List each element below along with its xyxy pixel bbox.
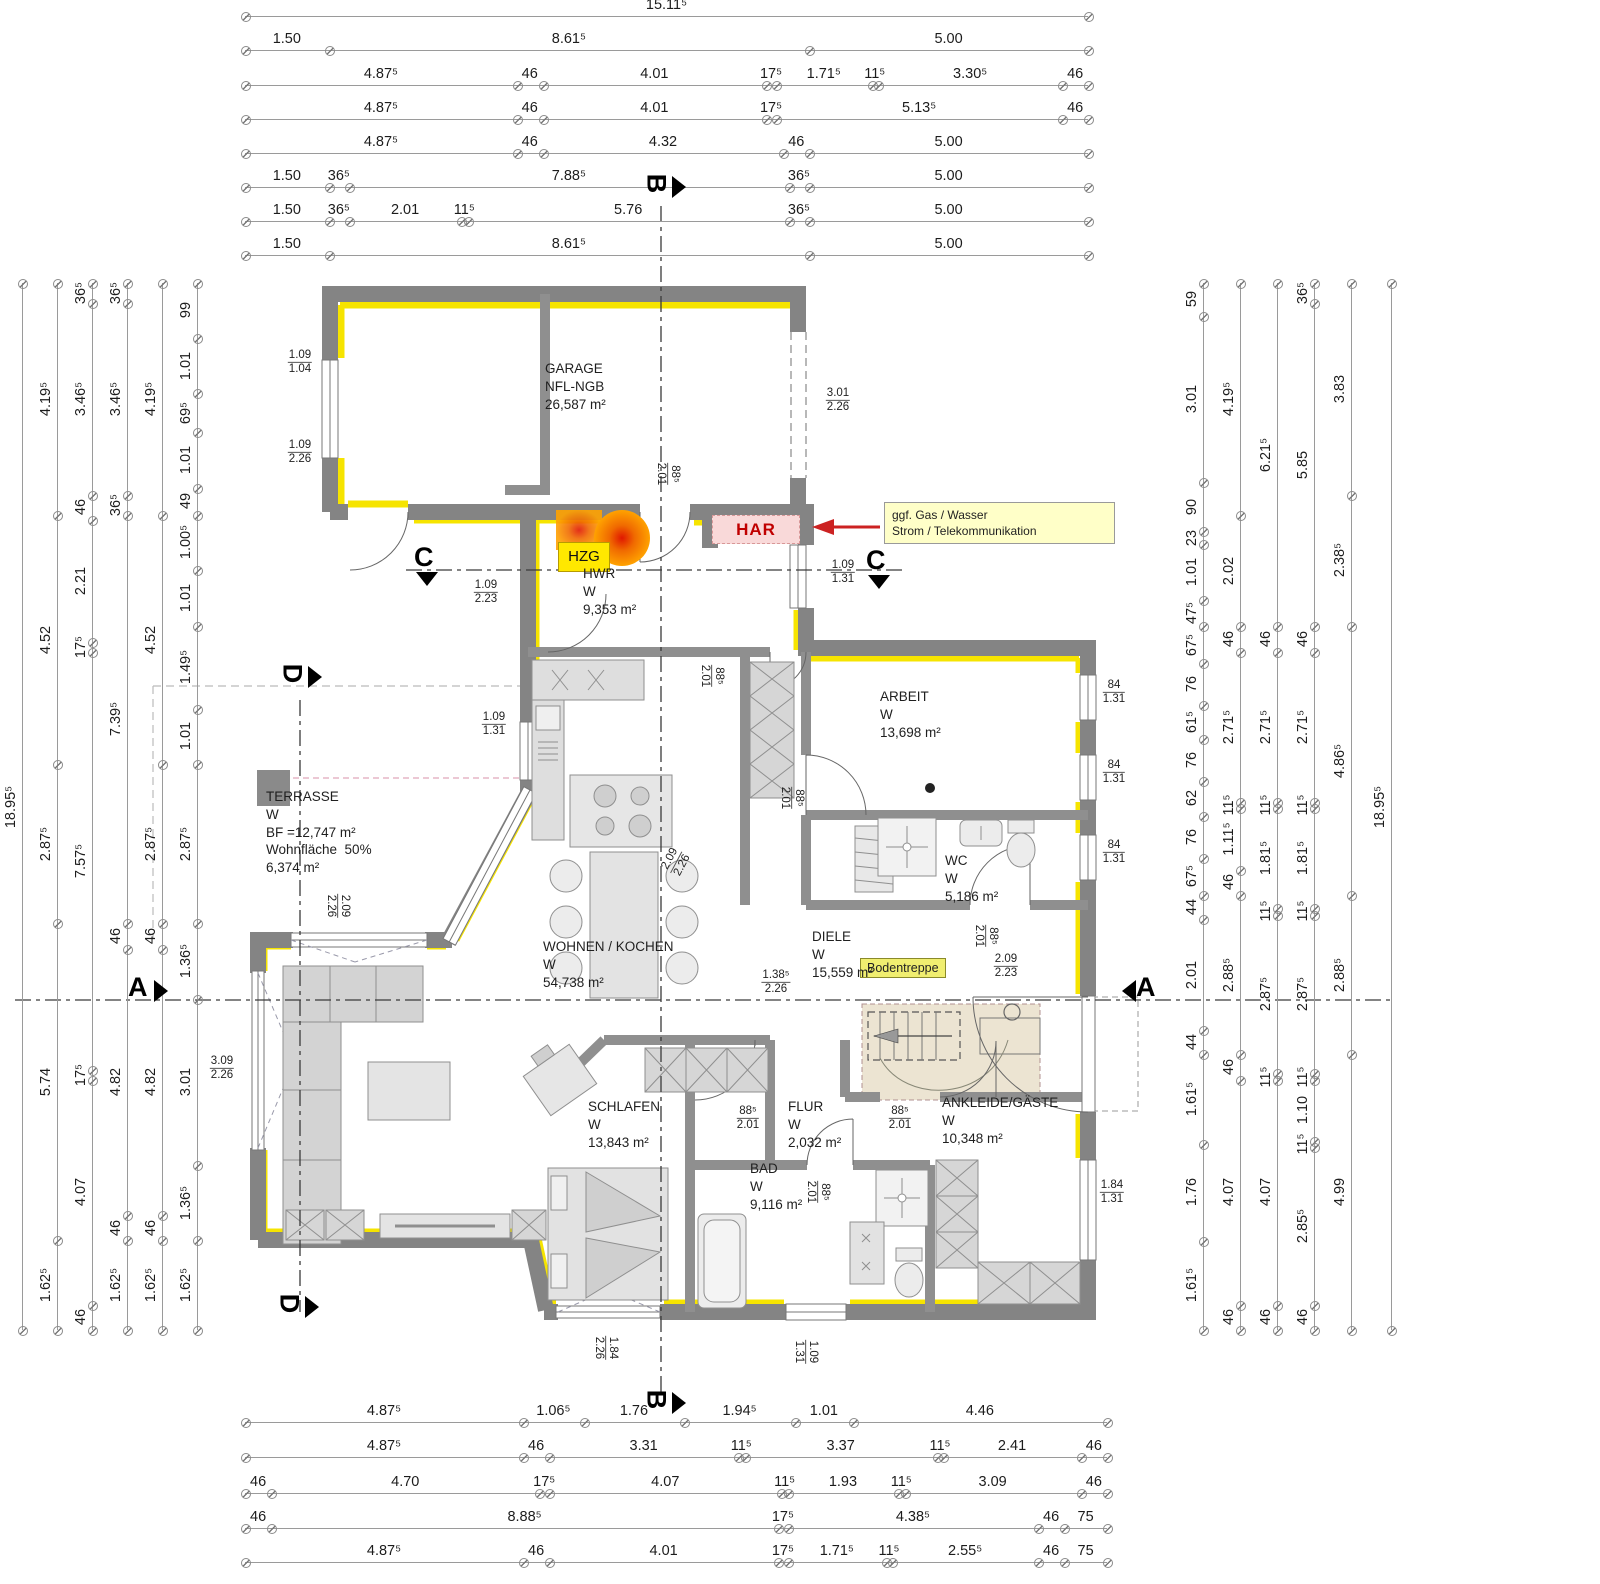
section-marker-c: C: [414, 542, 434, 573]
dim-value: 2.71⁵: [1258, 710, 1274, 744]
dim-value: 90: [1184, 499, 1200, 515]
dim-tick: [1103, 1418, 1113, 1428]
dim-tick: [1236, 891, 1246, 901]
dim-value: 4.46: [966, 1403, 994, 1419]
dim-tick: [241, 1489, 251, 1499]
dim-value: 1.81⁵: [1258, 841, 1274, 875]
opening-size: 1.842.26: [593, 1336, 619, 1360]
opening-height: 2.01: [805, 1181, 818, 1203]
attic-stair-zone: [862, 1004, 1040, 1100]
dim-value: 46: [1258, 1309, 1274, 1325]
dim-tick: [88, 1076, 98, 1086]
dim-tick: [1347, 891, 1357, 901]
dim-value: 2.02: [1221, 556, 1237, 584]
dim-value: 7.39⁵: [108, 702, 124, 736]
dim-value: 11⁵: [864, 66, 885, 82]
room-label-flur: FLUR W 2,032 m²: [788, 1098, 841, 1151]
room-label-terrasse: TERRASSE W BF =12,747 m² Wohnfläche 50% …: [266, 788, 372, 877]
dim-value: 5.00: [934, 202, 962, 218]
dim-tick: [1034, 1524, 1044, 1534]
dim-value: 46: [108, 1219, 124, 1235]
opening-size: 3.012.26: [826, 387, 850, 413]
dim-value: 46: [250, 1509, 266, 1525]
opening-size: 1.091.31: [831, 559, 855, 585]
dim-value: 7.88⁵: [552, 168, 586, 184]
dim-value: 1.62⁵: [178, 1268, 194, 1302]
dim-tick: [1077, 1489, 1087, 1499]
dim-value: 1.62⁵: [108, 1268, 124, 1302]
dim-tick: [1310, 1326, 1320, 1336]
dim-value: 2.71⁵: [1221, 710, 1237, 744]
dim-value: 4.87⁵: [367, 1543, 401, 1559]
garage-opening: [791, 332, 806, 478]
dim-value: 4.87⁵: [364, 100, 398, 116]
utility-note-line1: ggf. Gas / Wasser: [892, 508, 988, 522]
section-arrow-icon: [308, 666, 322, 688]
dim-value: 2.41: [998, 1438, 1026, 1454]
section-letter: C: [866, 545, 886, 576]
dim-tick: [158, 279, 168, 289]
dim-value: 5.00: [934, 168, 962, 184]
dim-chain: [245, 1493, 1107, 1494]
dim-value: 46: [528, 1438, 544, 1454]
dim-tick: [1236, 1301, 1246, 1311]
dim-chain: [92, 283, 93, 1330]
dim-tick: [325, 217, 335, 227]
dim-tick: [772, 115, 782, 125]
dim-value: 1.01: [178, 584, 194, 612]
dim-tick: [1236, 1326, 1246, 1336]
dim-tick: [1084, 183, 1094, 193]
dim-chain: [162, 283, 163, 1330]
dim-value: 1.01: [810, 1403, 838, 1419]
dim-value: 59: [1184, 291, 1200, 307]
dim-tick: [785, 217, 795, 227]
opening-width: 3.09: [210, 1055, 234, 1069]
dim-tick: [785, 183, 795, 193]
opening-width: 88⁵: [889, 1105, 911, 1119]
dim-tick: [158, 1211, 168, 1221]
dim-tick: [158, 1326, 168, 1336]
dim-value: 4.19⁵: [143, 382, 159, 416]
dim-value: 15.11⁵: [646, 0, 687, 13]
dim-value: 2.01: [391, 202, 419, 218]
dim-value: 4.07: [651, 1474, 679, 1490]
dim-value: 11⁵: [454, 202, 475, 218]
dim-tick: [123, 491, 133, 501]
dim-value: 3.37: [827, 1438, 855, 1454]
dim-value: 11⁵: [1295, 901, 1311, 922]
dim-value: 2.87⁵: [1258, 977, 1274, 1011]
dim-value: 46: [73, 1309, 89, 1325]
dim-value: 11⁵: [1258, 901, 1274, 922]
dim-value: 4.01: [640, 66, 668, 82]
opening-height: 2.01: [737, 1119, 759, 1132]
opening-height: 1.31: [482, 725, 506, 738]
dim-tick: [741, 1453, 751, 1463]
dim-tick: [241, 1453, 251, 1463]
opening-size: 88⁵2.01: [779, 787, 805, 809]
dim-value: 2.85⁵: [1295, 1209, 1311, 1243]
dim-tick: [1273, 279, 1283, 289]
section-arrow-icon: [1122, 980, 1136, 1002]
dim-value: 1.01: [178, 722, 194, 750]
dim-tick: [88, 491, 98, 501]
opening-height: 1.31: [1103, 693, 1125, 706]
dim-value: 46: [522, 100, 538, 116]
har-label: HAR: [712, 515, 800, 544]
opening-height: 2.26: [325, 894, 338, 918]
dim-tick: [241, 217, 251, 227]
opening-height: 1.31: [1103, 853, 1125, 866]
dim-value: 1.50: [273, 31, 301, 47]
opening-width: 1.09: [806, 1340, 820, 1364]
dim-value: 1.94⁵: [722, 1403, 756, 1419]
section-letter: B: [640, 174, 671, 194]
dim-chain: [245, 1457, 1107, 1458]
dim-value: 36⁵: [1295, 282, 1311, 304]
opening-size: 841.31: [1103, 759, 1125, 785]
dim-tick: [53, 1326, 63, 1336]
dim-value: 46: [1258, 631, 1274, 647]
dim-tick: [193, 622, 203, 632]
section-arrow-icon: [672, 176, 686, 198]
dim-value: 4.07: [1258, 1178, 1274, 1206]
dim-value: 5.74: [38, 1068, 54, 1096]
dim-tick: [1199, 812, 1209, 822]
dim-tick: [774, 1524, 784, 1534]
dim-value: 3.46⁵: [73, 382, 89, 416]
dim-tick: [1310, 911, 1320, 921]
dim-value: 4.87⁵: [364, 134, 398, 150]
section-arrow-icon: [868, 575, 890, 589]
dim-tick: [849, 1418, 859, 1428]
dim-value: 44: [1184, 899, 1200, 915]
dim-value: 17⁵: [772, 1509, 794, 1525]
dim-value: 18.95⁵: [3, 785, 19, 827]
section-letter: A: [128, 972, 148, 1003]
dim-tick: [193, 995, 203, 1005]
section-arrow-icon: [416, 572, 438, 586]
opening-height: 1.31: [1100, 1193, 1124, 1206]
opening-size: 1.841.31: [1100, 1179, 1124, 1205]
dim-value: 46: [1221, 1309, 1237, 1325]
opening-height: 1.31: [793, 1340, 806, 1364]
dim-value: 2.88⁵: [1332, 958, 1348, 992]
dim-value: 8.61⁵: [552, 31, 586, 47]
dim-tick: [1199, 1237, 1209, 1247]
section-marker-d: D: [279, 1288, 299, 1319]
section-marker-b: B: [646, 168, 666, 199]
dim-tick: [325, 251, 335, 261]
dim-value: 46: [1295, 631, 1311, 647]
dim-chain: [57, 283, 58, 1330]
opening-size: 2.092.26: [325, 894, 351, 918]
dim-chain: [245, 153, 1088, 154]
dim-value: 69⁵: [178, 402, 194, 424]
dim-value: 4.19⁵: [38, 382, 54, 416]
opening-width: 1.09: [288, 439, 312, 453]
dim-chain: [127, 283, 128, 1330]
dim-value: 47⁵: [1184, 602, 1200, 624]
dim-chain: [1391, 283, 1392, 1330]
utility-arrow: [812, 519, 880, 535]
dim-chain: [197, 283, 198, 1330]
section-letter: D: [276, 664, 307, 684]
dim-tick: [1347, 279, 1357, 289]
opening-size: 841.31: [1103, 839, 1125, 865]
room-label-schlafen: SCHLAFEN W 13,843 m²: [588, 1098, 660, 1151]
dim-value: 75: [1078, 1543, 1094, 1559]
opening-size: 841.31: [1103, 679, 1125, 705]
dim-value: 1.61⁵: [1184, 1268, 1200, 1302]
dim-value: 7.57⁵: [73, 844, 89, 878]
section-marker-a: A: [128, 972, 148, 1003]
dim-tick: [123, 945, 133, 955]
dim-tick: [193, 511, 203, 521]
dim-tick: [1199, 891, 1209, 901]
dim-tick: [123, 511, 133, 521]
dim-value: 2.87⁵: [143, 827, 159, 861]
dim-value: 2.87⁵: [178, 827, 194, 861]
dim-tick: [1387, 279, 1397, 289]
dim-value: 36⁵: [328, 202, 350, 218]
dim-value: 1.71⁵: [807, 66, 841, 82]
dim-tick: [18, 279, 28, 289]
dim-value: 46: [143, 1219, 159, 1235]
dim-value: 4.86⁵: [1332, 744, 1348, 778]
opening-height: 2.26: [210, 1069, 234, 1082]
opening-width: 84: [1103, 679, 1125, 693]
dim-value: 46: [788, 134, 804, 150]
dim-value: 2.21: [73, 567, 89, 595]
opening-size: 88⁵2.01: [973, 925, 999, 947]
dim-value: 5.00: [934, 31, 962, 47]
opening-height: 2.26: [288, 453, 312, 466]
dim-chain: [245, 255, 1088, 256]
room-label-hwr: HWR W 9,353 m²: [583, 565, 636, 618]
dim-value: 1.61⁵: [1184, 1082, 1200, 1116]
dim-value: 4.99: [1332, 1178, 1348, 1206]
dim-value: 4.38⁵: [896, 1509, 930, 1525]
dim-tick: [193, 279, 203, 289]
dim-value: 4.87⁵: [364, 66, 398, 82]
opening-width: 88⁵: [792, 787, 806, 809]
dim-tick: [1084, 217, 1094, 227]
room-label-garage: GARAGE NFL-NGB 26,587 m²: [545, 360, 606, 413]
section-letter: C: [414, 542, 434, 573]
dim-value: 1.50: [273, 168, 301, 184]
dim-tick: [1199, 1140, 1209, 1150]
dim-value: 46: [73, 499, 89, 515]
dim-value: 46: [1221, 874, 1237, 890]
dim-tick: [1236, 1076, 1246, 1086]
dim-value: 36⁵: [328, 168, 350, 184]
dim-chain: [245, 16, 1088, 17]
opening-width: 1.84: [1100, 1179, 1124, 1193]
dim-value: 36⁵: [108, 282, 124, 304]
dim-tick: [1103, 1558, 1113, 1568]
dim-value: 4.87⁵: [367, 1438, 401, 1454]
dim-tick: [1310, 1143, 1320, 1153]
dim-value: 17⁵: [760, 66, 782, 82]
dim-tick: [53, 279, 63, 289]
dim-tick: [193, 1161, 203, 1171]
dim-value: 1.50: [273, 202, 301, 218]
dim-value: 11⁵: [878, 1543, 899, 1559]
opening-height: 2.26: [826, 401, 850, 414]
dim-tick: [539, 81, 549, 91]
opening-size: 1.092.26: [288, 439, 312, 465]
dim-value: 2.71⁵: [1295, 710, 1311, 744]
dim-value: 1.93: [829, 1474, 857, 1490]
opening-size: 1.091.31: [482, 711, 506, 737]
dim-tick: [241, 12, 251, 22]
opening-height: 2.01: [973, 925, 986, 947]
dim-tick: [241, 46, 251, 56]
opening-size: 1.092.23: [474, 579, 498, 605]
dim-value: 61⁵: [1184, 711, 1200, 733]
dim-tick: [580, 1418, 590, 1428]
dim-tick: [18, 1326, 28, 1336]
dim-tick: [1199, 279, 1209, 289]
dim-value: 44: [1184, 1034, 1200, 1050]
dim-value: 4.01: [640, 100, 668, 116]
dim-tick: [193, 1326, 203, 1336]
dim-value: 2.88⁵: [1221, 958, 1237, 992]
dim-value: 1.10: [1295, 1096, 1311, 1124]
opening-size: 88⁵2.01: [699, 665, 725, 687]
dim-tick: [1347, 491, 1357, 501]
dim-tick: [193, 334, 203, 344]
dim-value: 76: [1184, 829, 1200, 845]
dim-chain: [245, 1528, 1107, 1529]
dim-chain: [1351, 283, 1352, 1330]
dim-tick: [1084, 115, 1094, 125]
dim-tick: [1273, 648, 1283, 658]
dim-tick: [1273, 1301, 1283, 1311]
dim-chain: [245, 221, 1088, 222]
dim-value: 3.31: [630, 1438, 658, 1454]
dim-value: 1.01: [1184, 558, 1200, 586]
dim-tick: [1199, 312, 1209, 322]
dim-value: 3.46⁵: [108, 382, 124, 416]
dim-value: 4.82: [143, 1068, 159, 1096]
dim-value: 4.82: [108, 1068, 124, 1096]
opening-height: 1.04: [288, 363, 312, 376]
dim-value: 1.00⁵: [178, 525, 194, 559]
dim-value: 17⁵: [73, 1064, 89, 1086]
opening-width: 88⁵: [818, 1181, 832, 1203]
room-label-diele: DIELE W 15,559 m²: [812, 928, 873, 981]
opening-height: 2.01: [779, 787, 792, 809]
dim-chain: [1203, 283, 1204, 1330]
opening-width: 3.01: [826, 387, 850, 401]
dim-tick: [88, 1301, 98, 1311]
kitchen-furniture: [532, 660, 672, 847]
dim-tick: [774, 1558, 784, 1568]
dim-value: 46: [1043, 1509, 1059, 1525]
room-label-bad: BAD W 9,116 m²: [750, 1160, 802, 1213]
dim-tick: [1310, 1301, 1320, 1311]
dim-tick: [791, 1418, 801, 1428]
dim-value: 2.38⁵: [1332, 543, 1348, 577]
utility-note: ggf. Gas / Wasser Strom / Telekommunikat…: [884, 502, 1115, 544]
dim-tick: [464, 217, 474, 227]
opening-width: 88⁵: [986, 925, 1000, 947]
dim-value: 1.71⁵: [820, 1543, 854, 1559]
opening-width: 2.09: [994, 953, 1018, 967]
opening-width: 84: [1103, 839, 1125, 853]
dim-value: 1.36⁵: [178, 944, 194, 978]
dim-value: 1.81⁵: [1295, 841, 1311, 875]
dim-tick: [241, 1524, 251, 1534]
dim-value: 4.19⁵: [1221, 382, 1237, 416]
dim-tick: [241, 115, 251, 125]
dim-chain: [245, 119, 1088, 120]
opening-height: 2.01: [655, 463, 668, 485]
dim-value: 11⁵: [891, 1474, 912, 1490]
utility-note-line2: Strom / Telekommunikation: [892, 524, 1037, 538]
room-label-arbeit: ARBEIT W 13,698 m²: [880, 688, 941, 741]
dim-value: 76: [1184, 676, 1200, 692]
dim-value: 67⁵: [1184, 634, 1200, 656]
dim-chain: [245, 50, 1088, 51]
dim-tick: [1273, 1076, 1283, 1086]
opening-height: 1.31: [1103, 773, 1125, 786]
dim-value: 46: [1067, 100, 1083, 116]
dim-tick: [88, 638, 98, 648]
dim-tick: [1084, 81, 1094, 91]
dim-value: 11⁵: [1258, 1066, 1274, 1087]
dim-value: 46: [108, 928, 124, 944]
dim-chain: [245, 1422, 1107, 1423]
opening-height: 2.23: [474, 593, 498, 606]
dim-tick: [241, 1558, 251, 1568]
dim-value: 1.50: [273, 236, 301, 252]
dim-tick: [1199, 596, 1209, 606]
section-marker-a: A: [1136, 972, 1156, 1003]
dim-tick: [241, 183, 251, 193]
dim-tick: [193, 428, 203, 438]
dim-value: 4.52: [38, 625, 54, 653]
dim-value: 1.49⁵: [178, 650, 194, 684]
section-marker-d: D: [282, 658, 302, 689]
dim-tick: [519, 1453, 529, 1463]
dim-value: 5.85: [1295, 451, 1311, 479]
opening-size: 1.091.04: [288, 349, 312, 375]
dim-tick: [1199, 854, 1209, 864]
dim-tick: [1084, 149, 1094, 159]
dim-value: 99: [178, 302, 194, 318]
opening-width: 88⁵: [712, 665, 726, 687]
dim-value: 1.62⁵: [143, 1268, 159, 1302]
dim-tick: [241, 81, 251, 91]
dim-value: 76: [1184, 752, 1200, 768]
hall-wardrobe: [750, 662, 893, 892]
dim-tick: [158, 511, 168, 521]
dim-tick: [1236, 804, 1246, 814]
dim-value: 3.30⁵: [953, 66, 987, 82]
dim-value: 23: [1184, 530, 1200, 546]
dim-tick: [88, 516, 98, 526]
section-marker-b: B: [646, 1384, 666, 1415]
dim-chain: [22, 283, 23, 1330]
opening-width: 1.09: [831, 559, 855, 573]
dim-value: 46: [1043, 1543, 1059, 1559]
opening-width: 88⁵: [668, 463, 682, 485]
dim-value: 11⁵: [1258, 794, 1274, 815]
